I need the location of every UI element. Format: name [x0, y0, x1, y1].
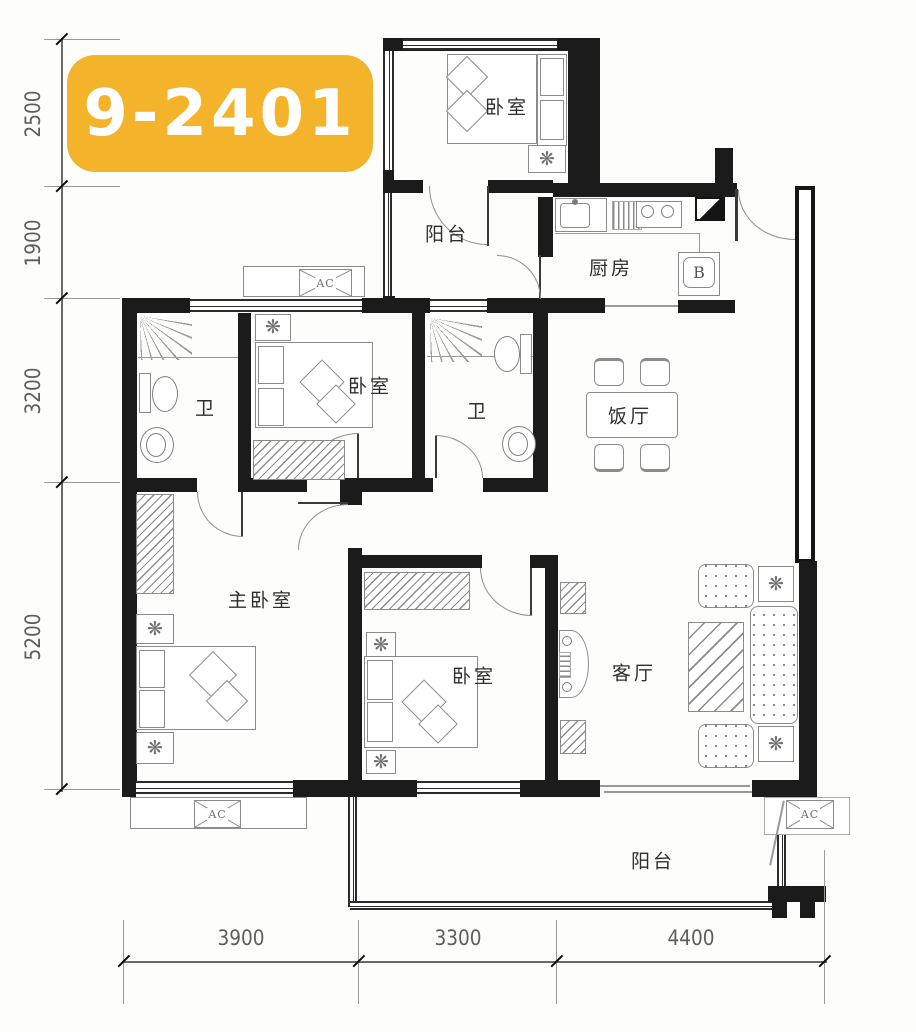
- appliance-box-inner: B: [683, 257, 715, 288]
- window: [383, 51, 394, 172]
- armchair: [698, 724, 754, 768]
- room-label-balcony-bottom: 阳台: [631, 847, 675, 874]
- door-swing-arc: [480, 568, 532, 616]
- pillar: [772, 900, 787, 918]
- dining-chair: [594, 358, 624, 386]
- wall-segment: [238, 313, 251, 492]
- dining-chair: [640, 444, 670, 472]
- kitchen-entry-line: [605, 305, 680, 307]
- room-label-bath-right: 卫: [467, 397, 489, 424]
- room-label-bedroom-middle: 卧室: [348, 372, 392, 399]
- sliding-door-line: [600, 785, 750, 787]
- wall-segment: [122, 313, 137, 492]
- counter-line: [699, 233, 700, 253]
- shower-partition: [138, 357, 238, 358]
- pillow: [367, 660, 393, 700]
- balcony-rail: [350, 901, 782, 910]
- wall-segment: [487, 298, 605, 313]
- door-swing-arc: [197, 492, 243, 537]
- door-leaf: [487, 186, 489, 246]
- appliance-label: B: [693, 263, 705, 282]
- wardrobe: [364, 572, 470, 610]
- side-table-plant-icon: [758, 566, 794, 602]
- wardrobe: [136, 494, 174, 594]
- wall-segment: [412, 313, 425, 492]
- burner: [661, 205, 674, 218]
- wall-segment: [348, 548, 362, 783]
- toilet-bowl: [494, 336, 520, 372]
- wall-segment: [383, 180, 423, 193]
- room-label-kitchen: 厨房: [589, 254, 633, 281]
- window: [403, 39, 557, 50]
- pillow: [540, 58, 564, 96]
- tv-speaker: [562, 682, 572, 692]
- balcony-rail: [348, 797, 357, 907]
- pillow: [258, 388, 284, 426]
- pillow: [139, 690, 165, 728]
- window: [417, 781, 520, 794]
- dining-chair: [640, 358, 670, 386]
- wall-segment: [359, 478, 433, 492]
- extension-line: [44, 789, 120, 790]
- wall-segment: [488, 180, 553, 193]
- dimension-value: 1900: [21, 219, 45, 266]
- toilet-bowl: [152, 376, 178, 412]
- window: [190, 299, 362, 312]
- dimension-value: 3900: [217, 926, 264, 950]
- ac-unit-box: AC: [786, 800, 834, 829]
- room-label-master-bedroom: 主卧室: [228, 586, 294, 613]
- unit-number-badge: 9-2401: [67, 55, 373, 172]
- entry-door-swing-arc: [738, 190, 795, 240]
- toilet-tank: [520, 334, 532, 374]
- dimension-value: 4400: [667, 926, 714, 950]
- room-label-balcony-top: 阳台: [425, 220, 469, 247]
- flue-duct-icon: [695, 197, 725, 221]
- ceiling-fan-icon: [366, 632, 396, 658]
- shower-spray-icon: [140, 316, 192, 360]
- door-swing-arc: [435, 435, 483, 478]
- pillar: [800, 900, 815, 918]
- ac-label: AC: [207, 808, 227, 821]
- wall-segment: [520, 780, 600, 797]
- ac-label: AC: [315, 277, 335, 290]
- dimension-line: [122, 961, 827, 963]
- wall-segment: [340, 478, 362, 505]
- dimension-value: 2500: [21, 90, 45, 137]
- ac-label: AC: [800, 808, 820, 821]
- wall-segment: [553, 183, 737, 197]
- wall-segment: [545, 562, 558, 783]
- ac-unit-box: AC: [299, 269, 352, 297]
- dimension-value: 5200: [21, 613, 45, 660]
- ceiling-fan-icon: [255, 314, 291, 341]
- toilet-tank: [139, 373, 151, 413]
- armchair: [698, 564, 754, 608]
- ceiling-fan-icon: [136, 614, 174, 644]
- wall-segment: [122, 780, 136, 797]
- sofa: [750, 606, 798, 724]
- burner: [641, 205, 654, 218]
- tv-cabinet: [560, 582, 586, 614]
- unit-number-label: 9-2401: [83, 77, 356, 151]
- door-swing-arc: [298, 504, 348, 550]
- wall-segment: [122, 492, 137, 791]
- room-label-bedroom-top: 卧室: [485, 93, 529, 120]
- wall-segment: [799, 561, 817, 792]
- wall-segment: [362, 555, 482, 568]
- window: [136, 781, 293, 794]
- room-label-living-room: 客厅: [612, 659, 656, 686]
- wall-segment: [362, 298, 430, 313]
- dimension-value: 3300: [434, 926, 481, 950]
- tv-cabinet: [560, 720, 586, 754]
- counter-line: [555, 233, 700, 234]
- pillow: [258, 346, 284, 384]
- floor-plan: AC AC AC: [0, 0, 916, 1032]
- room-label-bath-left: 卫: [195, 394, 217, 421]
- wall-segment: [533, 313, 548, 492]
- pillow: [540, 100, 564, 140]
- room-label-dining: 饭厅: [608, 402, 652, 429]
- wardrobe: [253, 440, 345, 480]
- pillow: [139, 650, 165, 688]
- sliding-door-line: [604, 791, 754, 793]
- ceiling-fan-icon: [136, 732, 174, 764]
- dining-chair: [594, 444, 624, 472]
- kitchen-sink-basin: [560, 203, 590, 228]
- wall-segment: [122, 298, 190, 313]
- wash-basin-inner: [508, 432, 528, 456]
- wall-segment: [568, 38, 600, 193]
- wall-segment: [715, 148, 733, 185]
- wall-segment: [752, 780, 817, 797]
- room-label-bedroom-bottom: 卧室: [452, 662, 496, 689]
- pillow: [367, 702, 393, 742]
- ac-unit-box: AC: [194, 800, 241, 828]
- wall-segment: [293, 780, 417, 797]
- extension-line: [44, 482, 120, 483]
- coffee-table: [688, 622, 744, 712]
- wall-segment: [538, 197, 553, 257]
- dimension-line: [61, 38, 63, 792]
- tv-base: [559, 652, 571, 678]
- side-table-plant-icon: [758, 726, 794, 762]
- wash-basin-inner: [146, 433, 166, 457]
- wall-segment: [483, 478, 548, 492]
- wall-hollow: [795, 186, 815, 563]
- extension-line: [44, 39, 120, 40]
- tv-speaker: [562, 636, 572, 646]
- faucet: [572, 199, 578, 205]
- dimension-value: 3200: [21, 367, 45, 414]
- balcony-rail: [383, 193, 392, 297]
- door-swing-arc: [497, 255, 541, 299]
- wall-segment: [122, 478, 197, 492]
- wall-segment: [243, 478, 307, 492]
- extension-line: [824, 850, 825, 1004]
- window: [430, 299, 487, 312]
- extension-line: [44, 186, 120, 187]
- ceiling-fan-icon: [528, 145, 566, 173]
- wall-segment: [678, 300, 735, 313]
- ceiling-fan-icon: [366, 750, 396, 774]
- extension-line: [44, 298, 120, 299]
